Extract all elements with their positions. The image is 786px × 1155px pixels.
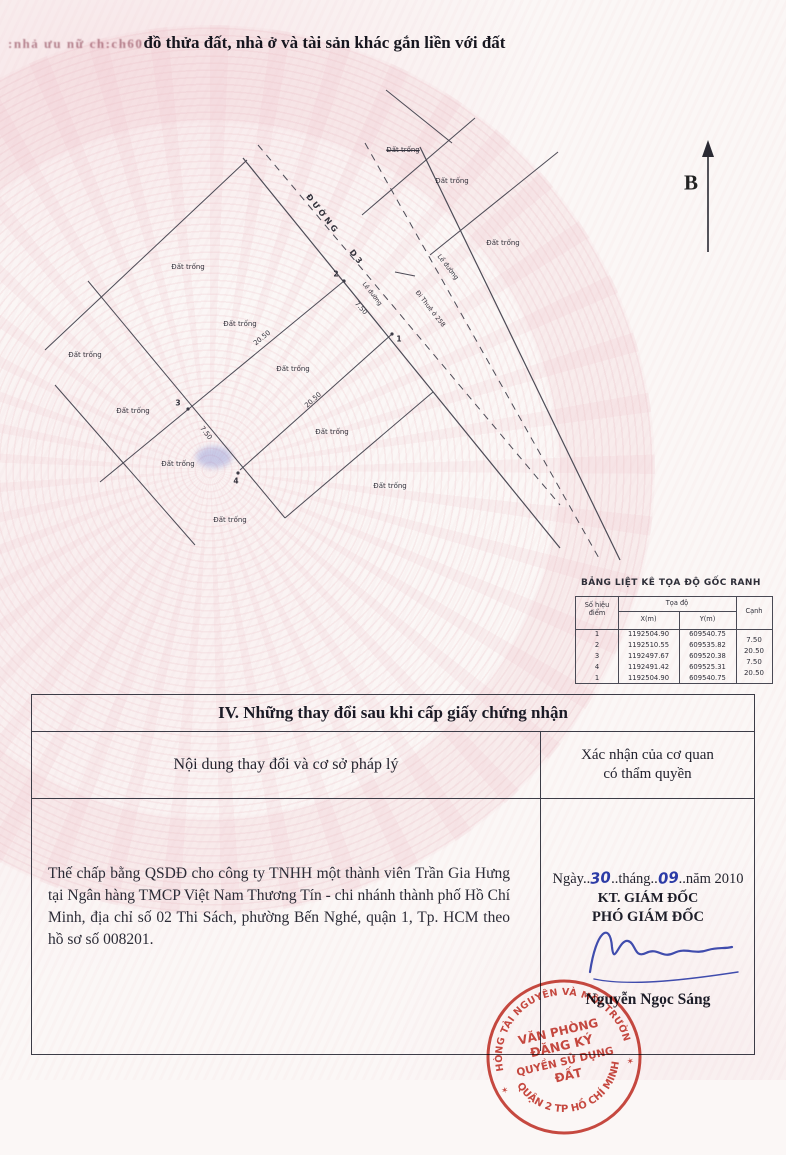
col-header-confirmation: Xác nhận của cơ quan có thẩm quyền [541,732,754,798]
plot-label: Đất trống [486,239,519,247]
col-header-point: Số hiệuđiểm [576,602,618,617]
col-header-x: X(m) [618,616,679,624]
table-row: 31192497.67609520.38 [576,651,736,662]
table-row: 21192510.55609535.82 [576,640,736,651]
parcel-lines [0,60,786,580]
stamp-star-left: ✶ [500,1085,510,1096]
plot-label: Đất trống [171,263,204,271]
coordinate-table: Số hiệuđiểm Tọa độ X(m) Y(m) Cạnh 111925… [575,596,773,684]
kt-giam-doc-line: KT. GIÁM ĐỐC [544,891,752,907]
plot-label: Đất trống [373,482,406,490]
section-iv-subheader: Nội dung thay đổi và cơ sở pháp lý Xác n… [32,732,754,799]
plot-label: Đất trống [223,320,256,328]
col-header-y: Y(m) [679,616,736,624]
plot-label: Đất trống [116,407,149,415]
point-label-1: 1 [396,335,401,344]
section-iv-body: Thế chấp bằng QSDĐ cho công ty TNHH một … [32,799,754,1051]
handwritten-day: 30 [589,868,611,888]
col-header-content: Nội dung thay đổi và cơ sở pháp lý [32,732,541,798]
stamp-star-right: ✶ [626,1056,636,1067]
coordinate-rows: 11192504.90609540.75 21192510.55609535.8… [576,629,736,683]
plot-label: Đất trống [386,146,419,154]
col-header-toado: Tọa độ [618,600,736,608]
plot-label: Đất trống [161,460,194,468]
col-header-canh: Cạnh [736,608,772,616]
point-label-4: 4 [233,477,238,486]
point-label-3: 3 [175,399,180,408]
table-row: 41192491.42609525.31 [576,661,736,672]
plot-label: Đất trống [68,351,101,359]
north-label: B [684,171,698,196]
table-row: 11192504.90609540.75 [576,629,736,640]
plot-label: Đất trống [435,177,468,185]
handwritten-month: 09 [657,868,679,888]
table-row: 11192504.90609540.75 [576,672,736,683]
canh-values: 7.50 20.50 7.50 20.50 [736,629,772,683]
plot-label: Đất trống [276,365,309,373]
section-iv-header: IV. Những thay đổi sau khi cấp giấy chứn… [32,695,754,732]
section-iv-table: IV. Những thay đổi sau khi cấp giấy chứn… [31,694,755,1055]
coordinate-table-title: BẢNG LIỆT KÊ TỌA ĐỘ GỐC RANH [581,578,761,588]
plot-label: Đất trống [315,428,348,436]
point-label-2: 2 [333,270,338,279]
mortgage-entry-text: Thế chấp bằng QSDĐ cho công ty TNHH một … [48,863,510,951]
north-arrow-head [702,140,714,157]
plot-label: Đất trống [213,516,246,524]
date-line: Ngày..30..tháng..09..năm 2010 [544,869,752,888]
